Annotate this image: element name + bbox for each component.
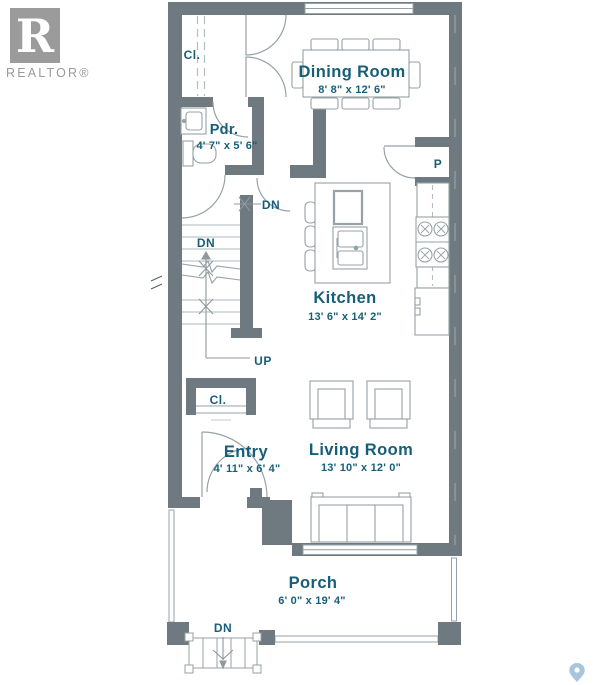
porch-railing-left (169, 510, 174, 622)
pdr-sink (181, 108, 206, 134)
label-porch-down: DN (214, 621, 232, 635)
fridge (415, 288, 449, 335)
wall-entry-closet-left (186, 388, 196, 415)
room-dims-kitchen: 13' 6" x 14' 2" (308, 311, 382, 323)
armchair (310, 381, 353, 428)
dining-chair (342, 39, 369, 50)
wall-break-ticks (151, 276, 162, 289)
sofa (311, 493, 411, 542)
door-landing-arc (182, 175, 225, 218)
wall-stairs-cap (231, 328, 262, 338)
dining-chair (373, 39, 400, 50)
island-stool (305, 250, 316, 271)
wall-kitchen-jamb (290, 165, 326, 178)
island-sink (333, 227, 367, 269)
island-stool (305, 202, 316, 223)
island-stool (305, 226, 316, 247)
entry-closet-shelf (196, 406, 246, 420)
wall-stairs-right (240, 195, 253, 330)
dining-chair (373, 98, 400, 109)
room-title-dining: Dining Room (298, 63, 405, 81)
label-stairs-up: UP (254, 354, 272, 368)
wall-corner-pillar (262, 500, 292, 545)
door-pantry-arc (384, 147, 415, 178)
logo-r: R (16, 9, 55, 63)
dining-chair (311, 39, 338, 50)
kitchen-island (305, 183, 390, 283)
room-dims-powder: 4' 7" x 5' 6" (196, 140, 257, 152)
room-dims-dining: 8' 8" x 12' 6" (318, 84, 385, 96)
wall-entry-closet-top (186, 378, 256, 388)
stair-break-lines (182, 261, 240, 283)
wall-pdr-top-left (182, 97, 213, 107)
floor-plan-svg: R REALTOR® (0, 0, 610, 685)
label-pantry: P (434, 157, 443, 171)
map-pin-icon[interactable] (569, 663, 584, 682)
wall-hall-dining (313, 100, 326, 165)
room-title-porch: Porch (289, 574, 338, 592)
room-title-living: Living Room (309, 441, 413, 459)
room-dims-porch: 6' 0" x 19' 4" (278, 595, 345, 607)
porch-railing-right (452, 558, 457, 621)
logo-wordmark: REALTOR® (6, 66, 91, 80)
dining-chair (409, 62, 420, 88)
wall-left (168, 2, 182, 497)
label-closet-upper: Cl. (184, 48, 201, 62)
dining-chair (342, 98, 369, 109)
door-closet-arc-2 (246, 57, 286, 97)
realtor-logo: R REALTOR® (6, 8, 91, 80)
wall-landing-top (225, 165, 264, 175)
room-title-kitchen: Kitchen (313, 289, 376, 307)
door-closet-arc-1 (246, 15, 286, 55)
room-title-entry: Entry (224, 443, 269, 461)
porch-railing-front (275, 636, 438, 642)
wall-pdr-right (252, 99, 264, 175)
kitchen-wall-run (415, 183, 449, 335)
room-title-powder: Pdr. (210, 122, 239, 138)
wall-entry-closet-right (246, 388, 256, 415)
range (416, 217, 449, 267)
label-closet-entry: Cl. (210, 393, 227, 407)
wall-pantry-top (415, 137, 449, 147)
label-stairs-down-upper: DN (262, 198, 280, 212)
room-dims-entry: 4' 11" x 6' 4" (214, 463, 281, 475)
label-stairs-down: DN (197, 236, 215, 250)
armchair (367, 381, 410, 428)
room-dims-living: 13' 10" x 12' 0" (321, 462, 401, 474)
floor-plan-page: R REALTOR® (0, 0, 610, 685)
dining-chair (311, 98, 338, 109)
porch-post (438, 622, 461, 645)
wall-entry-bottom-left (168, 497, 200, 508)
island-cooktop (334, 191, 362, 224)
